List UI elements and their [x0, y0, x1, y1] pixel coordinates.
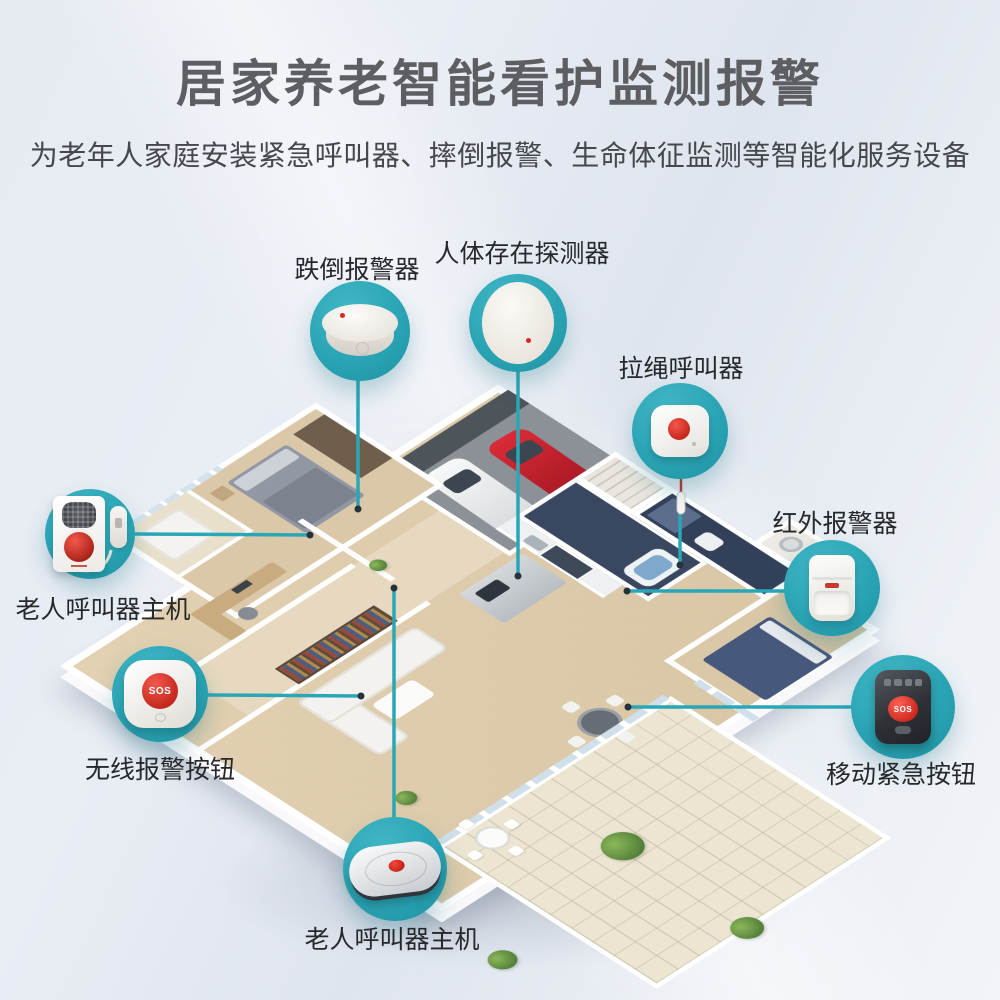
infrared-sensor-device-icon	[809, 555, 855, 621]
callout-label-fall-alarm: 跌倒报警器	[294, 250, 419, 286]
callout-label-caller-host-wall: 老人呼叫器主机	[15, 590, 190, 626]
callout-presence-detector	[469, 274, 567, 372]
indicator-led	[825, 583, 839, 588]
indicator-led	[340, 313, 345, 318]
callout-fall-alarm	[310, 281, 410, 381]
callout-caller-host-wall	[45, 489, 135, 579]
sos-button: SOS	[142, 673, 178, 709]
callout-label-wireless-sos-button: 无线报警按钮	[85, 750, 235, 786]
pull-cord-device-icon	[651, 405, 709, 457]
red-alarm-dome	[64, 532, 94, 562]
callout-wireless-sos-button: SOS	[112, 646, 208, 742]
sos-button: SOS	[888, 696, 918, 722]
callout-mobile-sos-button: SOS	[851, 655, 955, 759]
callout-label-infrared-alarm: 红外报警器	[772, 504, 897, 540]
callout-label-pull-cord-caller: 拉绳呼叫器	[618, 349, 743, 385]
callout-caller-host-desk	[343, 817, 447, 921]
red-call-button	[668, 418, 690, 440]
poster: 居家养老智能看护监测报警 为老年人家庭安装紧急呼叫器、摔倒报警、生命体征监测等智…	[0, 0, 1000, 1000]
callout-label-caller-host-desk: 老人呼叫器主机	[304, 920, 479, 956]
callout-pull-cord-caller	[632, 383, 728, 479]
caller-host-device-icon	[51, 494, 129, 574]
callout-label-presence-detector: 人体存在探测器	[434, 234, 609, 270]
desk-host-device-icon	[346, 839, 443, 900]
connector-lines	[0, 0, 1000, 1000]
presence-detector-device-icon	[482, 282, 554, 364]
speaker-grille	[62, 502, 96, 528]
indicator-led	[526, 338, 531, 343]
callout-label-mobile-sos-button: 移动紧急按钮	[826, 755, 976, 791]
mobile-sos-device-icon: SOS	[875, 670, 931, 744]
callout-infrared-alarm	[784, 540, 880, 636]
fall-alarm-device-icon	[322, 304, 398, 358]
wireless-button-device-icon: SOS	[124, 660, 196, 728]
